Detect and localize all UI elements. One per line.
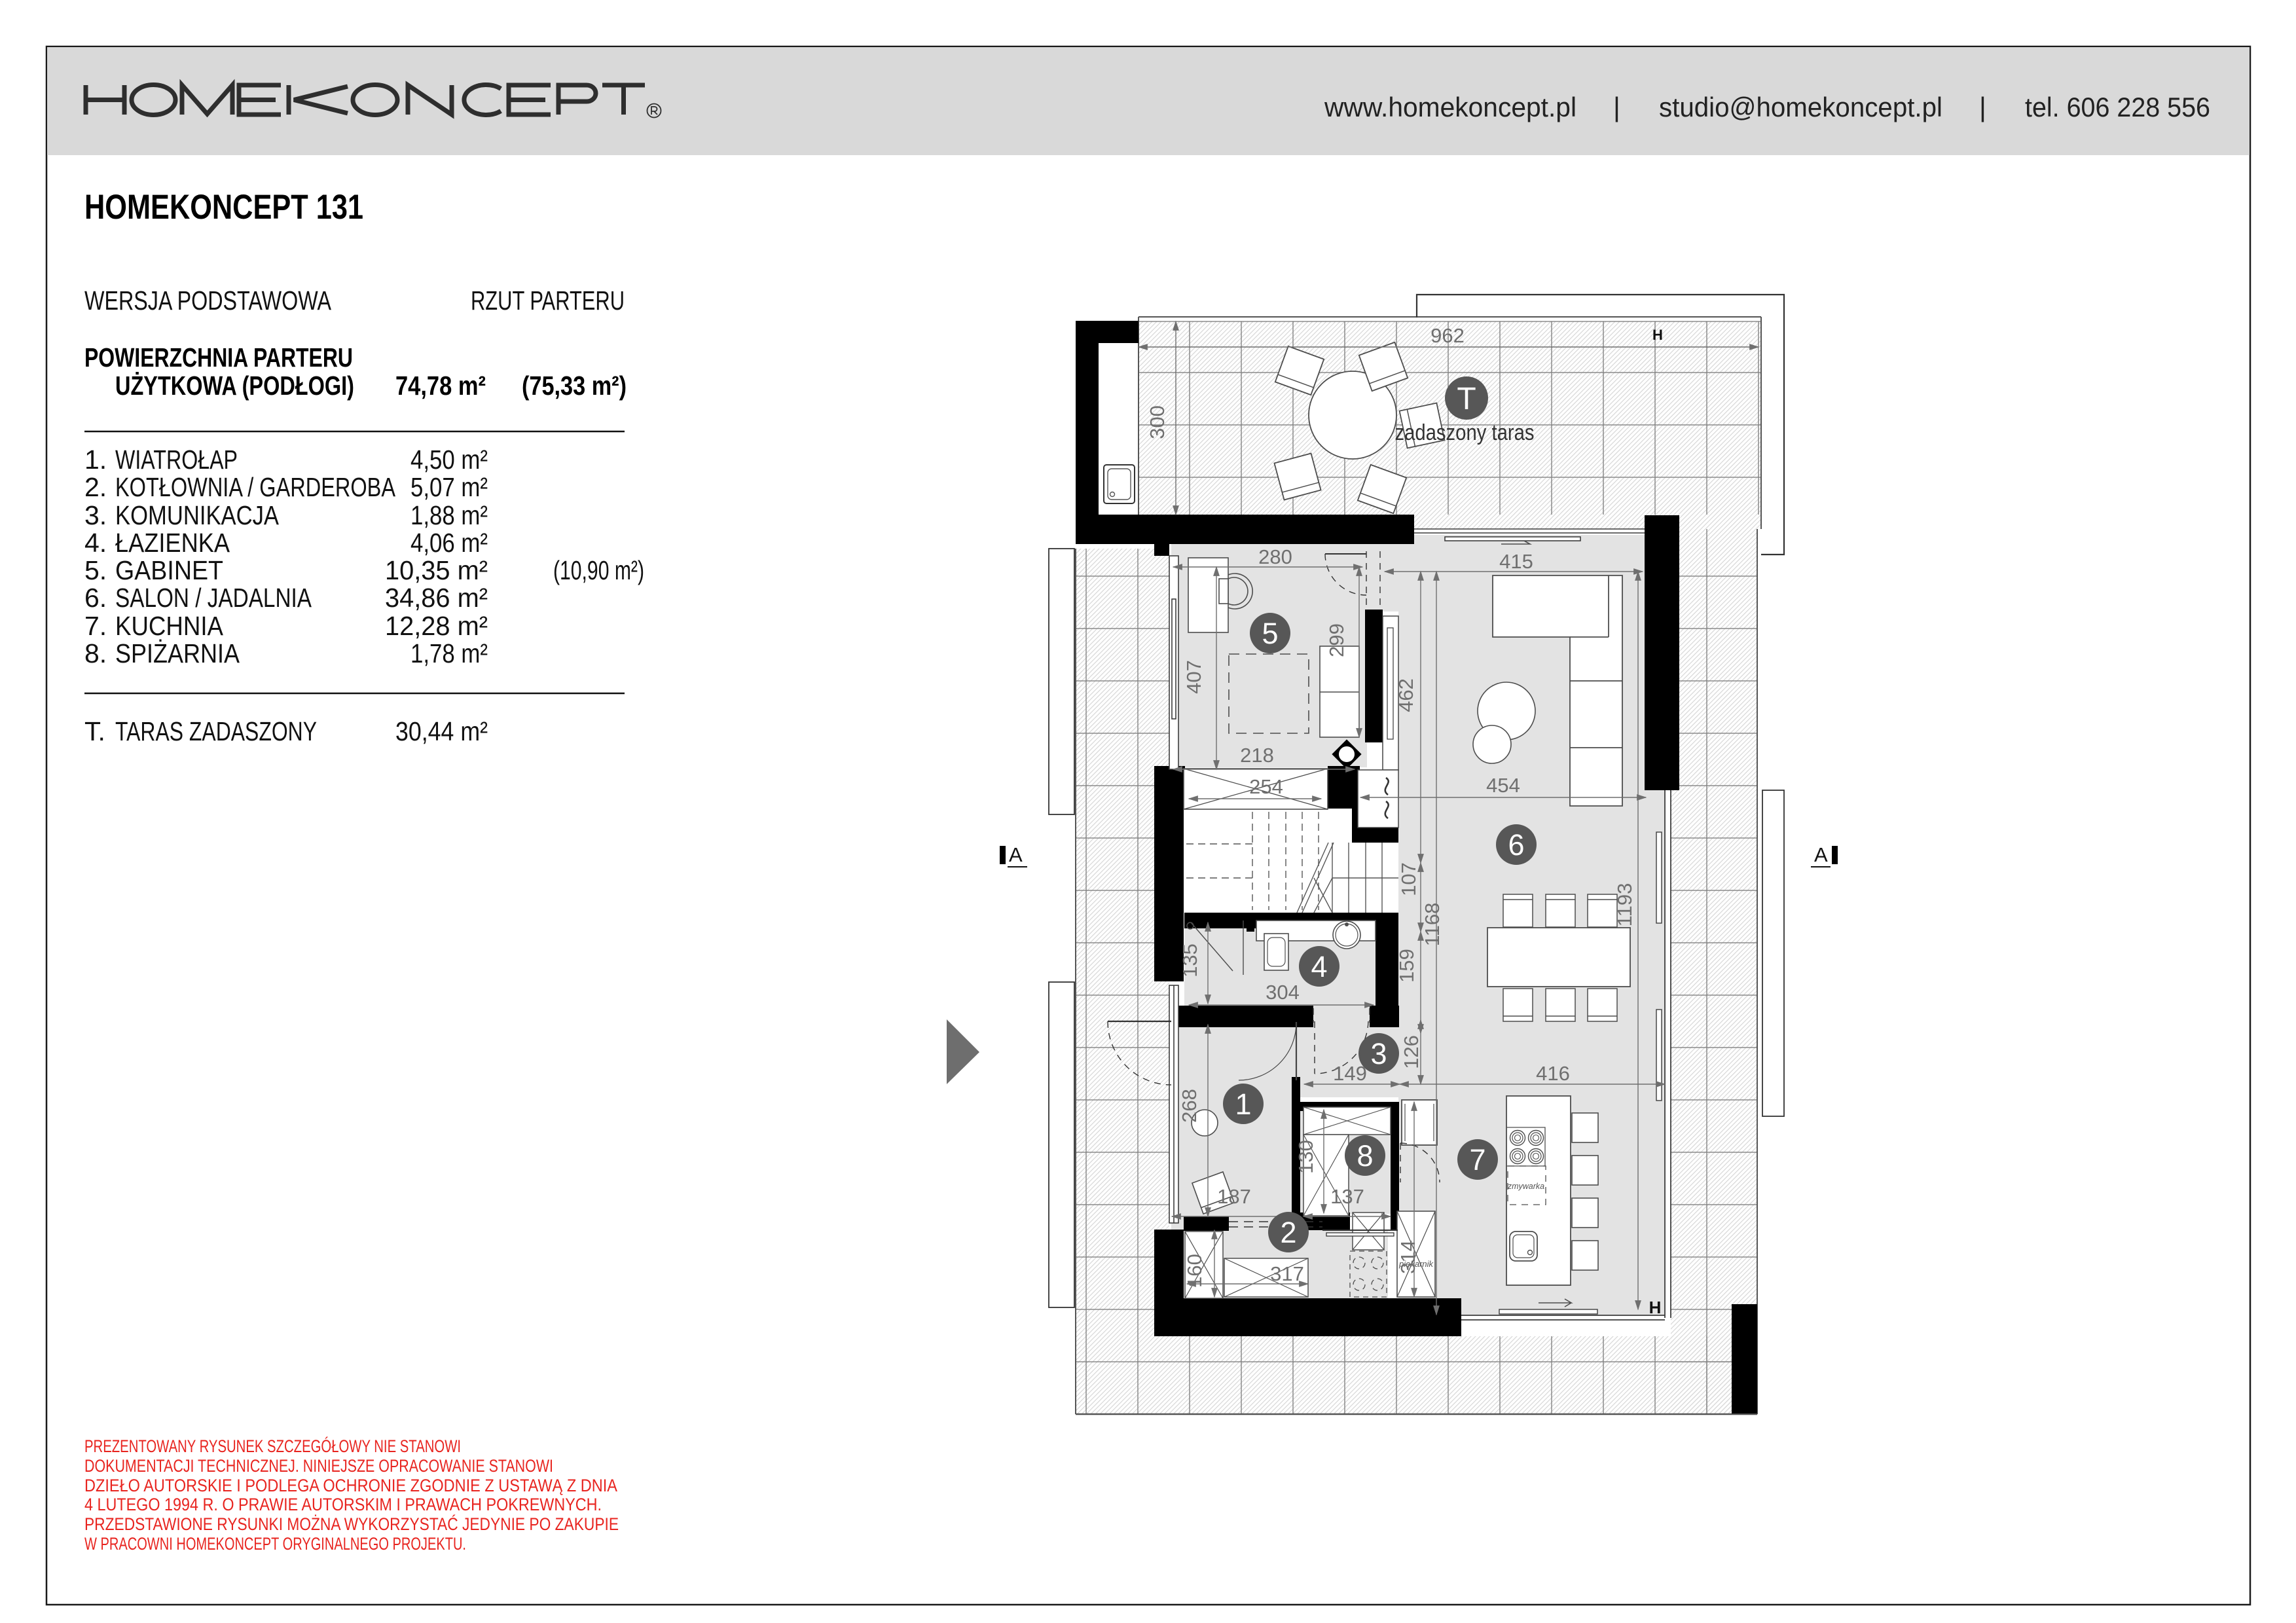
svg-text:74,78 m²: 74,78 m²	[395, 371, 486, 401]
svg-text:4: 4	[1311, 950, 1327, 983]
svg-text:WERSJA PODSTAWOWA: WERSJA PODSTAWOWA	[84, 285, 332, 316]
svg-text:149: 149	[1333, 1062, 1367, 1085]
svg-text:159: 159	[1395, 949, 1418, 983]
svg-text:ŁAZIENKA: ŁAZIENKA	[115, 528, 230, 558]
svg-text:2: 2	[1280, 1216, 1296, 1249]
svg-text:3: 3	[1370, 1037, 1387, 1070]
svg-text:1168: 1168	[1421, 903, 1444, 947]
svg-text:126: 126	[1400, 1035, 1423, 1069]
svg-text:160: 160	[1183, 1254, 1206, 1288]
svg-text:DOKUMENTACJI TECHNICZNEJ. NINI: DOKUMENTACJI TECHNICZNEJ. NINIEJSZE OPRA…	[84, 1456, 553, 1476]
svg-text:1.: 1.	[84, 445, 107, 475]
svg-text:WIATROŁAP: WIATROŁAP	[115, 445, 238, 475]
svg-text:137: 137	[1330, 1185, 1364, 1208]
svg-text:A: A	[1814, 843, 1828, 866]
svg-text:TARAS ZADASZONY: TARAS ZADASZONY	[115, 716, 317, 746]
svg-text:1,78 m²: 1,78 m²	[410, 638, 488, 668]
svg-text:(10,90 m²): (10,90 m²)	[553, 555, 644, 585]
svg-text:4.: 4.	[84, 528, 107, 558]
svg-text:218: 218	[1240, 744, 1274, 767]
svg-text:KOMUNIKACJA: KOMUNIKACJA	[115, 500, 280, 530]
svg-text:HOMEKONCEPT 131: HOMEKONCEPT 131	[84, 188, 363, 227]
svg-text:5: 5	[1262, 617, 1278, 650]
svg-text:T.: T.	[84, 716, 105, 746]
svg-text:8: 8	[1357, 1139, 1373, 1173]
svg-text:12,28 m²: 12,28 m²	[385, 611, 488, 641]
svg-text:PREZENTOWANY RYSUNEK SZCZEGÓŁO: PREZENTOWANY RYSUNEK SZCZEGÓŁOWY NIE STA…	[84, 1436, 461, 1456]
svg-text:254: 254	[1249, 775, 1283, 798]
svg-text:4 LUTEGO 1994 R. O PRAWIE AUTO: 4 LUTEGO 1994 R. O PRAWIE AUTORSKIM I PR…	[84, 1495, 602, 1514]
svg-text:34,86 m²: 34,86 m²	[385, 583, 488, 613]
svg-text:300: 300	[1146, 405, 1169, 439]
svg-text:5,07 m²: 5,07 m²	[410, 472, 488, 502]
svg-text:1,88 m²: 1,88 m²	[410, 500, 488, 530]
svg-text:107: 107	[1397, 862, 1420, 896]
svg-text:PRZEDSTAWIONE RYSUNKI MOŻNA WY: PRZEDSTAWIONE RYSUNKI MOŻNA WYKORZYSTAĆ …	[84, 1514, 619, 1534]
svg-text:5.: 5.	[84, 555, 107, 585]
svg-text:415: 415	[1499, 550, 1533, 573]
svg-text:187: 187	[1217, 1185, 1251, 1208]
svg-text:407: 407	[1182, 660, 1205, 694]
svg-text:4,06 m²: 4,06 m²	[410, 528, 488, 558]
svg-text:135: 135	[1178, 943, 1201, 977]
svg-text:SPIŻARNIA: SPIŻARNIA	[115, 638, 240, 668]
svg-text:zadaszony taras: zadaszony taras	[1395, 420, 1535, 445]
svg-text:KOTŁOWNIA / GARDEROBA: KOTŁOWNIA / GARDEROBA	[115, 472, 396, 502]
svg-text:1: 1	[1235, 1087, 1251, 1121]
svg-text:280: 280	[1258, 545, 1292, 568]
svg-text:416: 416	[1536, 1062, 1570, 1085]
svg-text:1193: 1193	[1613, 883, 1636, 927]
svg-text:3.: 3.	[84, 500, 107, 530]
svg-text:454: 454	[1486, 774, 1520, 797]
svg-text:tel. 606 228 556: tel. 606 228 556	[2025, 92, 2210, 122]
svg-text:studio@homekoncept.pl: studio@homekoncept.pl	[1659, 92, 1942, 122]
svg-text:10,35 m²: 10,35 m²	[385, 555, 488, 585]
svg-text:462: 462	[1394, 678, 1417, 712]
svg-text:DZIEŁO AUTORSKIE I PODLEGA OCH: DZIEŁO AUTORSKIE I PODLEGA OCHRONIE ZGOD…	[84, 1476, 617, 1495]
svg-text:304: 304	[1266, 981, 1300, 1004]
svg-text:317: 317	[1270, 1262, 1304, 1285]
svg-text:POWIERZCHNIA PARTERU: POWIERZCHNIA PARTERU	[84, 342, 353, 373]
svg-text:6.: 6.	[84, 583, 107, 613]
svg-text:|: |	[1979, 92, 1986, 122]
svg-text:2.: 2.	[84, 472, 107, 502]
svg-text:268: 268	[1178, 1089, 1201, 1123]
svg-text:T: T	[1457, 382, 1476, 416]
svg-text:4,50 m²: 4,50 m²	[410, 445, 488, 475]
svg-text:130: 130	[1294, 1140, 1317, 1174]
svg-text:W PRACOWNI HOMEKONCEPT ORYGINA: W PRACOWNI HOMEKONCEPT ORYGINALNEGO PROJ…	[84, 1534, 466, 1554]
svg-text:A: A	[1009, 843, 1023, 866]
svg-text:UŻYTKOWA (PODŁOGI): UŻYTKOWA (PODŁOGI)	[115, 371, 354, 401]
svg-text:30,44 m²: 30,44 m²	[395, 716, 488, 746]
svg-text:zmywarka: zmywarka	[1507, 1182, 1544, 1191]
svg-text:7.: 7.	[84, 611, 107, 641]
svg-text:RZUT PARTERU: RZUT PARTERU	[471, 285, 625, 316]
svg-text:|: |	[1613, 92, 1620, 122]
svg-text:KUCHNIA: KUCHNIA	[115, 611, 224, 641]
svg-text:H: H	[1652, 327, 1663, 343]
svg-text:H: H	[1649, 1298, 1662, 1317]
svg-text:(75,33 m²): (75,33 m²)	[522, 371, 627, 401]
svg-text:962: 962	[1430, 324, 1465, 347]
svg-text:www.homekoncept.pl: www.homekoncept.pl	[1324, 92, 1576, 122]
svg-text:6: 6	[1508, 828, 1524, 862]
svg-text:299: 299	[1325, 623, 1348, 657]
svg-text:SALON / JADALNIA: SALON / JADALNIA	[115, 583, 312, 613]
svg-text:GABINET: GABINET	[115, 555, 223, 585]
svg-text:7: 7	[1469, 1143, 1485, 1176]
svg-text:8.: 8.	[84, 638, 107, 668]
svg-text:314: 314	[1396, 1240, 1419, 1274]
